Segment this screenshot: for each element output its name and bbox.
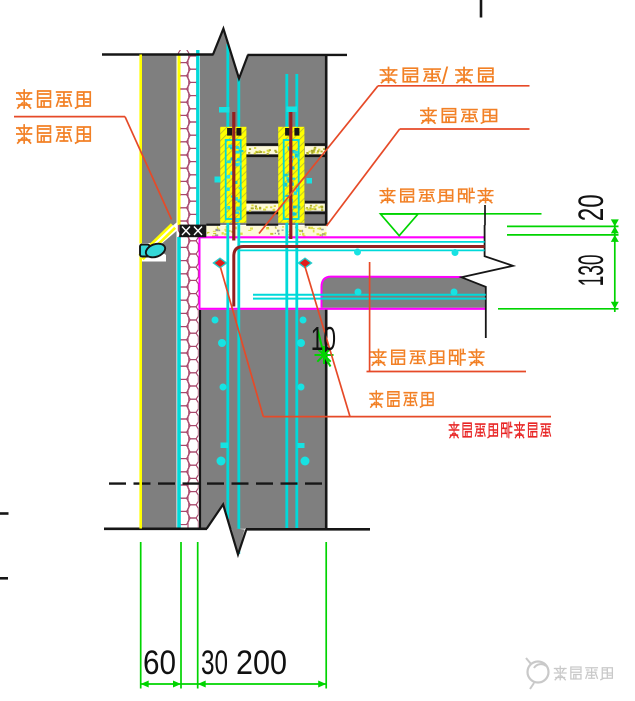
svg-text:/: / — [442, 63, 449, 90]
svg-text:10: 10 — [311, 320, 336, 357]
svg-text:20: 20 — [572, 194, 611, 221]
svg-text:30: 30 — [201, 644, 228, 682]
svg-text:130: 130 — [572, 254, 611, 286]
svg-text:60: 60 — [143, 644, 176, 682]
svg-text:200: 200 — [236, 644, 287, 682]
